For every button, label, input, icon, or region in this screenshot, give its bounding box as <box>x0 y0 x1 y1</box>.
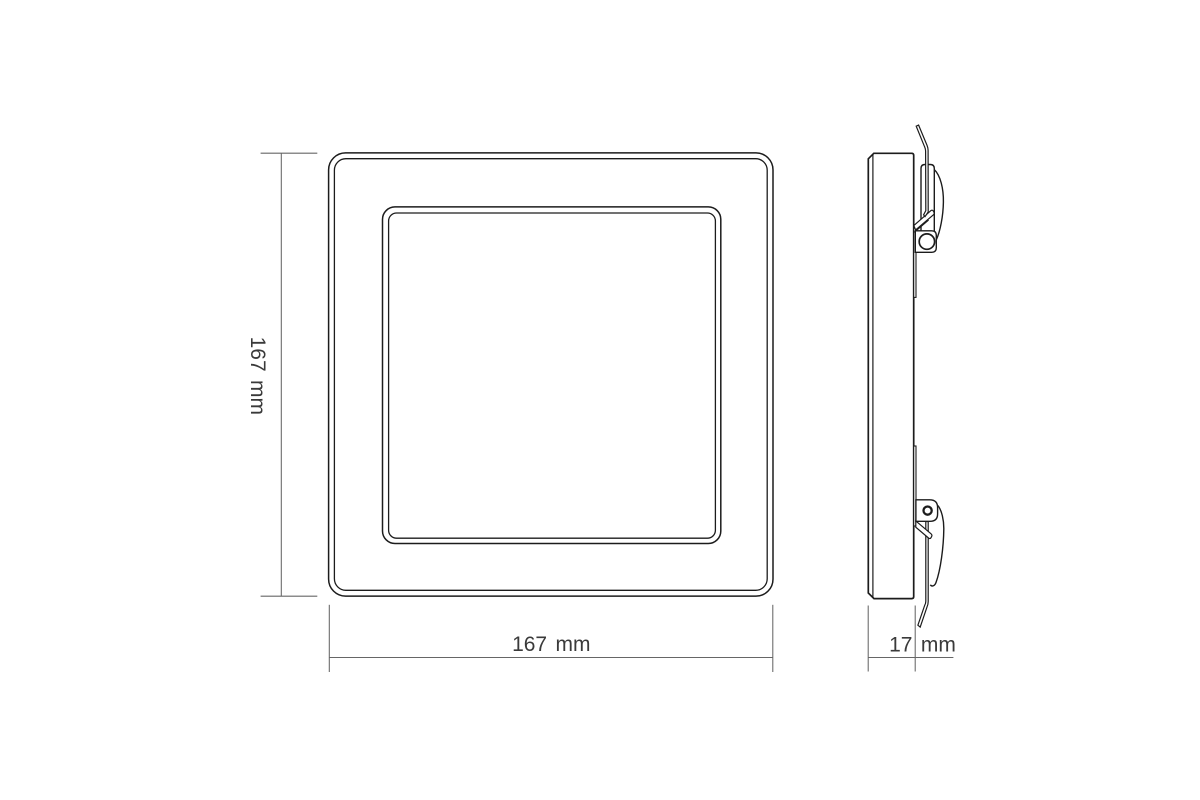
svg-text:17 mm: 17 mm <box>889 634 956 657</box>
svg-text:167 mm: 167 mm <box>512 633 590 656</box>
svg-text:167 mm: 167 mm <box>246 337 269 415</box>
